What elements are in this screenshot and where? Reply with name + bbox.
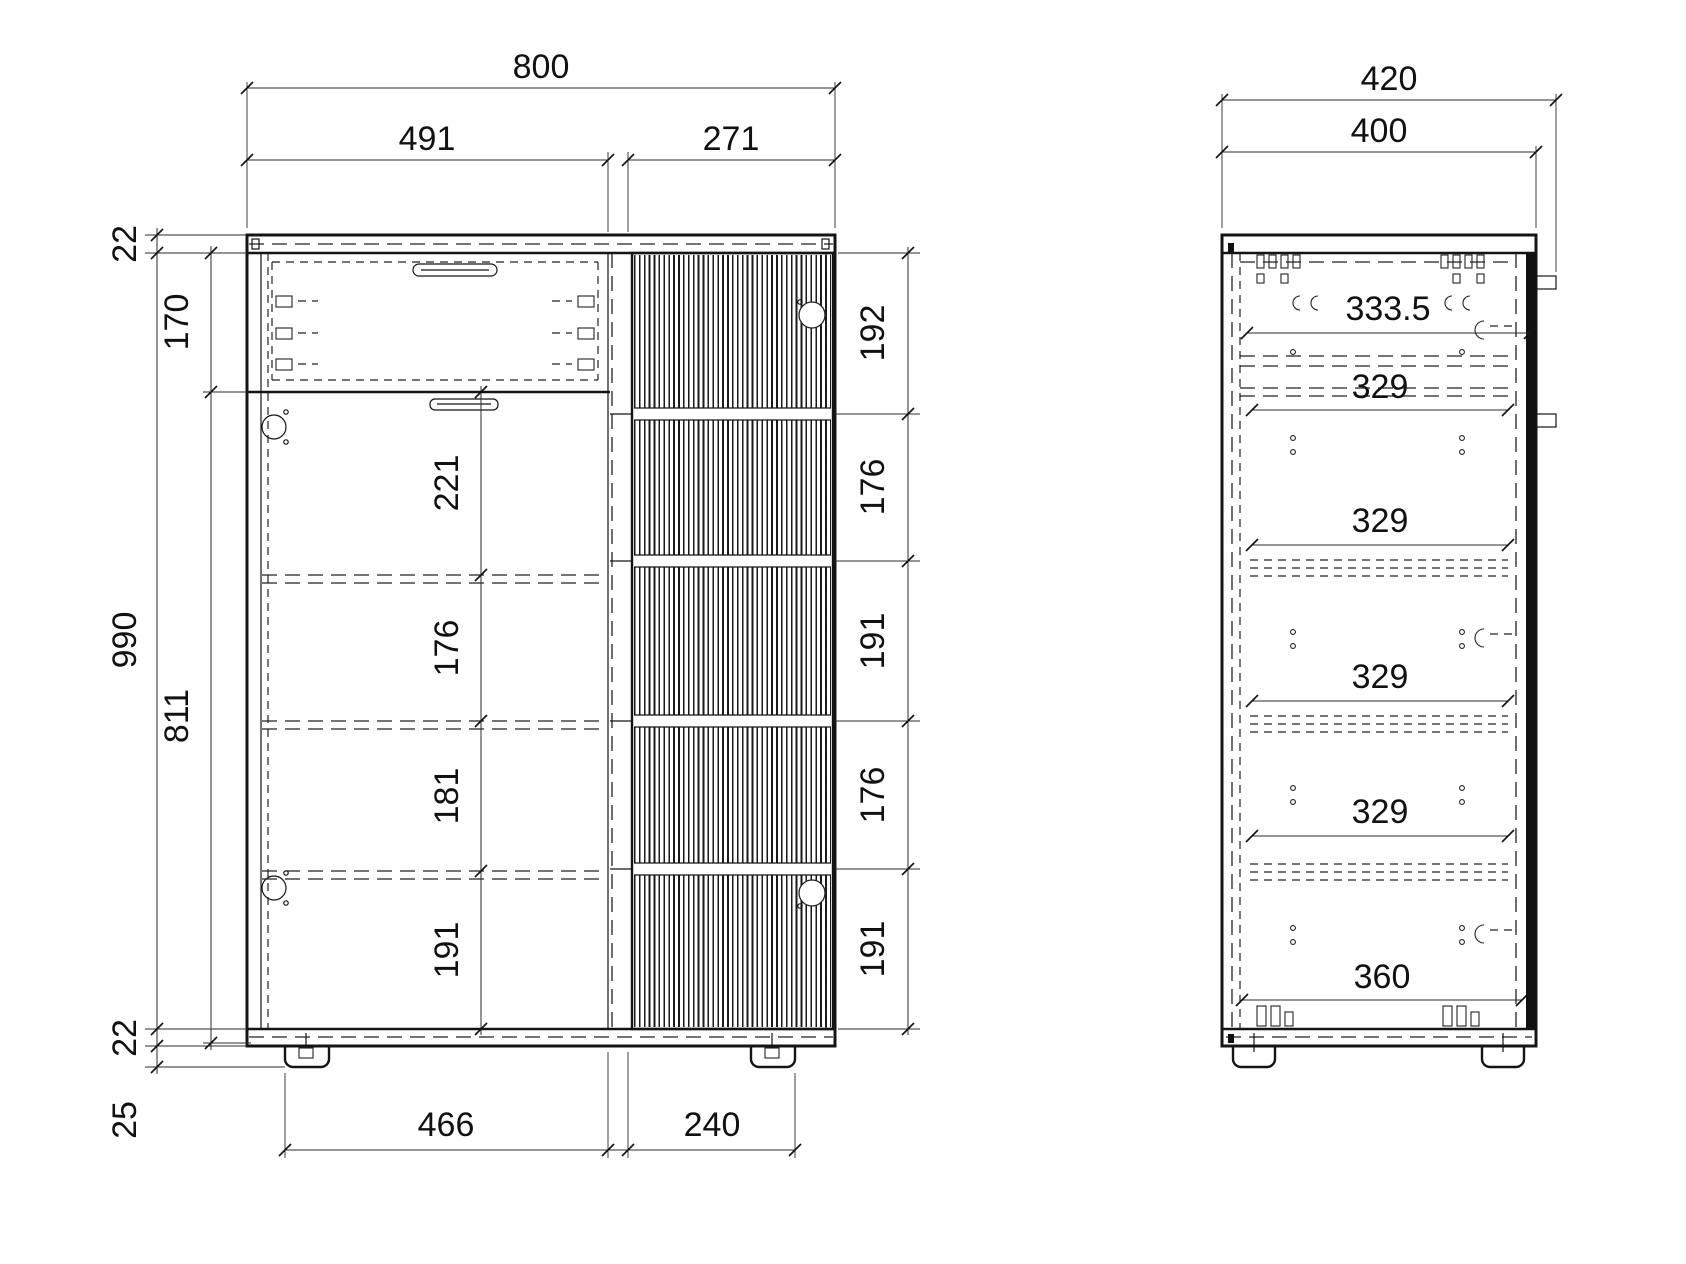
front-dimensions: 800 491 271 22 170 990 811 22 25 221 176…: [106, 48, 920, 1158]
dim-front-right-section: 271: [703, 120, 760, 158]
dim-front-feet-height: 25: [106, 1101, 144, 1139]
dim-front-bottom-right-span: 240: [684, 1106, 741, 1144]
dim-front-door-front: 811: [158, 689, 196, 743]
dim-front-overall-height: 990: [106, 612, 144, 669]
dim-side-depth-2: 329: [1352, 368, 1409, 406]
dim-front-right-shelf-3: 191: [854, 613, 892, 670]
dim-front-bottom-panel: 22: [106, 1019, 144, 1057]
dim-side-depth-3: 329: [1352, 502, 1409, 540]
hinge-circle-right-bottom: [799, 880, 825, 906]
dim-front-center-shelf-3: 181: [428, 768, 466, 825]
dim-front-center-shelf-1: 221: [428, 455, 466, 512]
side-view: 420 400 333.5 329 329 329 329 360: [1216, 60, 1562, 1067]
front-right-foot: [751, 1046, 795, 1067]
dim-front-bottom-left-span: 466: [418, 1106, 475, 1144]
front-body: [247, 235, 835, 1046]
dim-side-depth-4: 329: [1352, 658, 1409, 696]
hinge-circle-right-top: [799, 302, 825, 328]
dim-side-overall-depth: 420: [1361, 60, 1418, 98]
front-fluted-door: [610, 253, 833, 1029]
front-left-foot: [285, 1046, 329, 1067]
front-feet: [285, 1033, 795, 1067]
hinge-circle-top: [262, 415, 286, 439]
dim-front-top-panel: 22: [106, 225, 144, 263]
drawing-canvas: 800 491 271 22 170 990 811 22 25 221 176…: [0, 0, 1686, 1264]
dim-side-body-depth: 400: [1351, 112, 1408, 150]
dim-front-drawer-front: 170: [158, 294, 196, 351]
dim-front-left-section: 491: [399, 120, 456, 158]
side-drawer-handle: [1536, 276, 1556, 289]
side-door-handle: [1536, 414, 1556, 427]
dim-front-center-shelf-2: 176: [428, 620, 466, 677]
side-front-panel: [1526, 253, 1536, 1029]
dim-front-right-shelf-2: 176: [854, 459, 892, 516]
dim-front-center-shelf-4: 191: [428, 922, 466, 979]
dim-side-depth-5: 329: [1352, 793, 1409, 831]
dim-side-depth-1: 333.5: [1345, 290, 1430, 328]
dim-side-depth-6: 360: [1354, 958, 1411, 996]
front-view: 800 491 271 22 170 990 811 22 25 221 176…: [106, 48, 920, 1158]
dim-front-overall-width: 800: [513, 48, 570, 86]
dim-front-right-shelf-1: 192: [854, 305, 892, 362]
technical-drawing: 800 491 271 22 170 990 811 22 25 221 176…: [0, 0, 1686, 1264]
front-drawer: [272, 262, 598, 380]
side-feet: [1233, 1033, 1524, 1067]
dim-front-right-shelf-5: 191: [854, 921, 892, 978]
dim-front-right-shelf-4: 176: [854, 767, 892, 824]
